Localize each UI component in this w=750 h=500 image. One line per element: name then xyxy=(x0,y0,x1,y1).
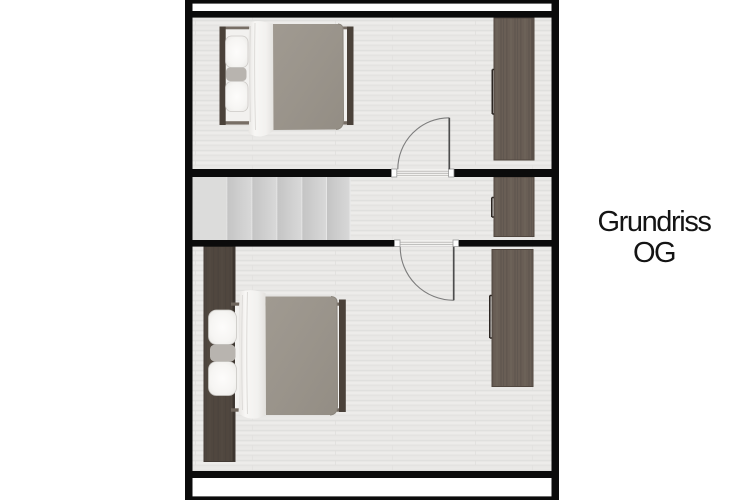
svg-text:Grundriss: Grundriss xyxy=(597,206,711,238)
svg-text:OG: OG xyxy=(633,237,675,269)
